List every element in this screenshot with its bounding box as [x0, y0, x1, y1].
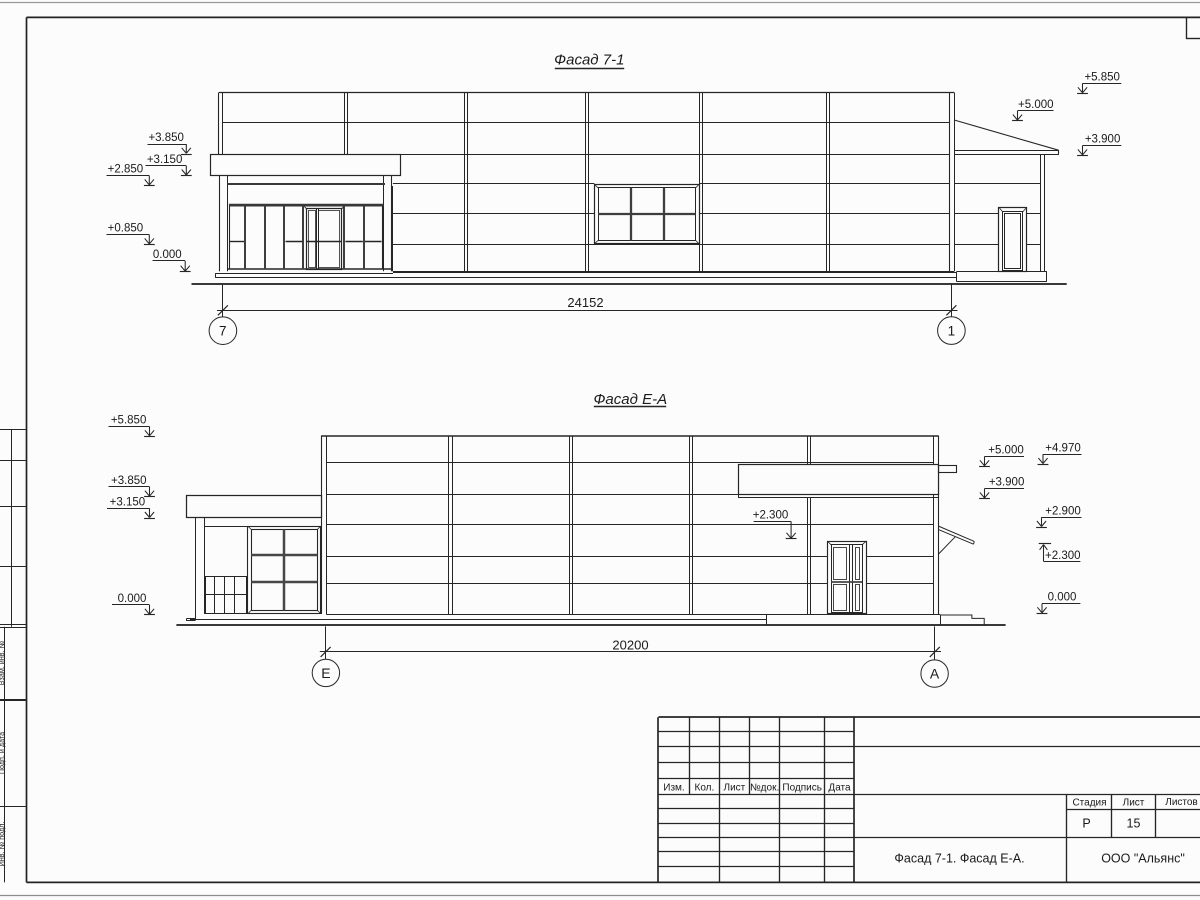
svg-text:0.000: 0.000 [118, 593, 147, 605]
svg-text:7: 7 [219, 324, 227, 339]
svg-text:Инв. № подл.: Инв. № подл. [0, 822, 6, 867]
svg-text:+5.850: +5.850 [111, 415, 147, 427]
svg-text:+2.300: +2.300 [1045, 550, 1081, 562]
svg-text:+3.900: +3.900 [989, 477, 1025, 489]
svg-text:+3.850: +3.850 [111, 475, 147, 487]
svg-text:20200: 20200 [612, 637, 648, 652]
svg-text:Лист: Лист [1123, 798, 1145, 809]
svg-text:0.000: 0.000 [1048, 592, 1077, 604]
svg-text:Е: Е [321, 665, 330, 681]
svg-text:Подп. и дата: Подп. и дата [0, 732, 6, 774]
svg-text:+3.150: +3.150 [147, 154, 183, 166]
svg-text:0.000: 0.000 [153, 249, 182, 261]
svg-text:А: А [930, 666, 940, 682]
svg-text:Взам. инв. №: Взам. инв. № [0, 640, 6, 685]
svg-text:Фасад 7-1. Фасад Е-А.: Фасад 7-1. Фасад Е-А. [894, 852, 1024, 866]
svg-text:Кол.: Кол. [695, 782, 715, 793]
svg-text:Фасад Е-А: Фасад Е-А [594, 391, 668, 408]
svg-text:15: 15 [1127, 816, 1141, 830]
svg-text:Изм.: Изм. [663, 782, 684, 793]
svg-text:Листов: Листов [1165, 797, 1198, 808]
svg-text:+2.850: +2.850 [108, 164, 144, 176]
svg-text:+3.150: +3.150 [110, 496, 146, 508]
svg-text:1: 1 [948, 324, 956, 339]
svg-text:+0.850: +0.850 [108, 223, 144, 235]
svg-text:+5.850: +5.850 [1084, 72, 1120, 84]
svg-text:Стадия: Стадия [1072, 798, 1106, 809]
svg-text:Лист: Лист [724, 782, 746, 793]
svg-text:+4.970: +4.970 [1045, 442, 1081, 454]
svg-text:Подпись: Подпись [782, 782, 822, 793]
svg-text:Дата: Дата [828, 782, 851, 793]
svg-text:+3.850: +3.850 [148, 132, 184, 144]
svg-text:Фасад 7-1: Фасад 7-1 [554, 52, 624, 69]
svg-text:+3.900: +3.900 [1085, 134, 1121, 146]
svg-text:Р: Р [1082, 816, 1090, 830]
svg-text:+5.000: +5.000 [1018, 99, 1054, 111]
svg-text:+5.000: +5.000 [988, 445, 1024, 457]
svg-text:№док.: №док. [750, 782, 779, 793]
svg-text:ООО "Альянс": ООО "Альянс" [1101, 852, 1185, 866]
svg-text:+2.300: +2.300 [753, 510, 789, 522]
svg-text:+2.900: +2.900 [1045, 505, 1081, 517]
svg-text:24152: 24152 [567, 295, 603, 310]
